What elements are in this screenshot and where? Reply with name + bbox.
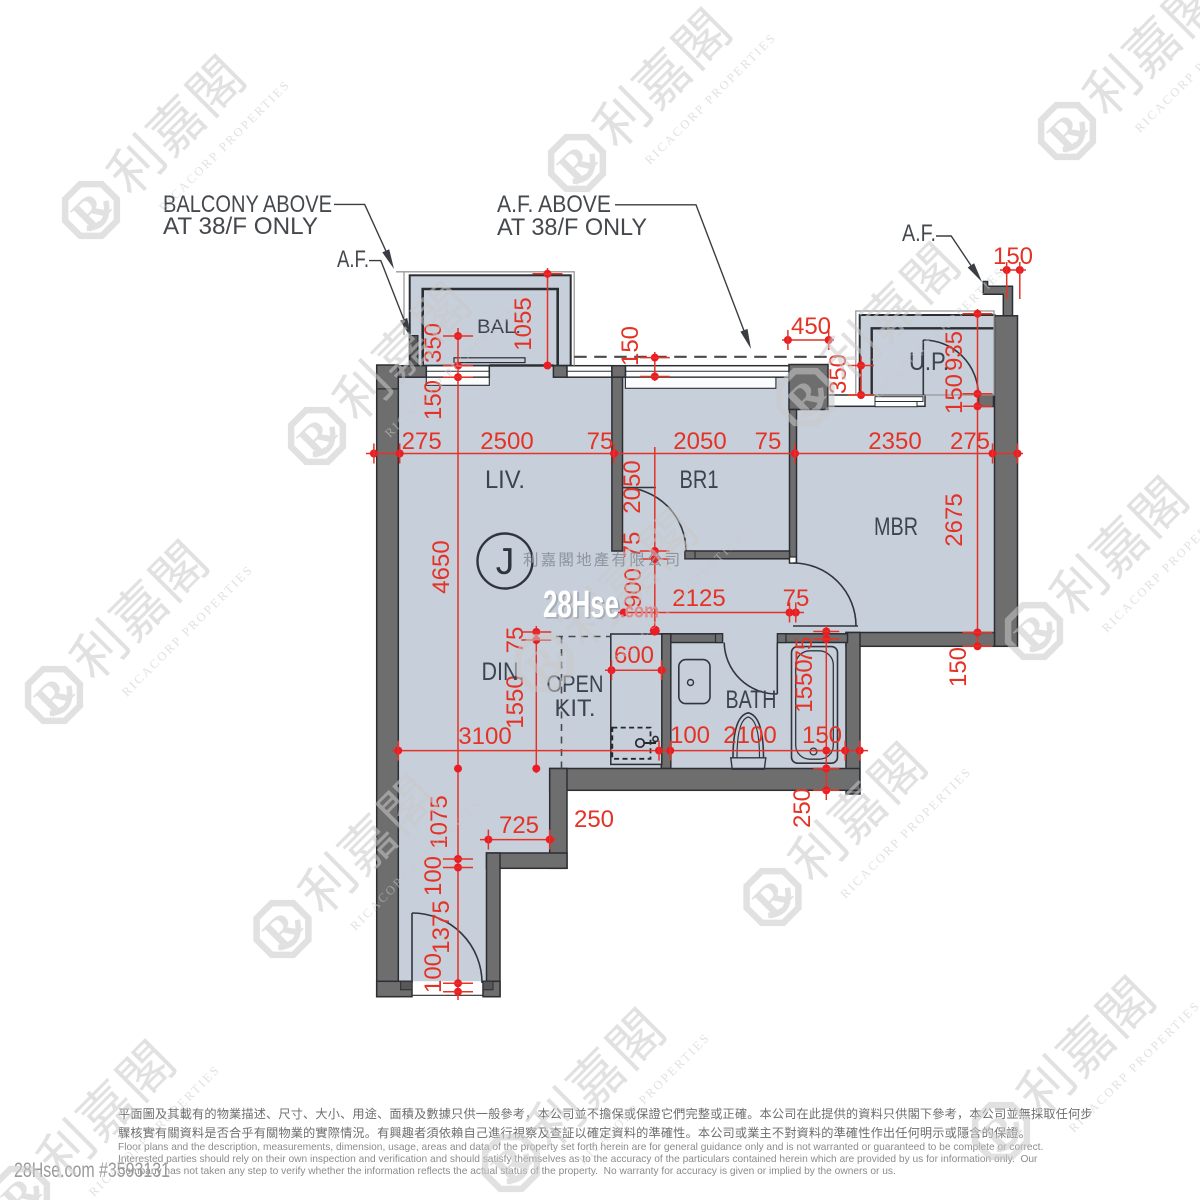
svg-text:.com: .com (620, 600, 659, 623)
svg-text:28Hse: 28Hse (543, 584, 619, 626)
svg-text:利嘉閣地產有限公司: 利嘉閣地產有限公司 (523, 551, 682, 569)
